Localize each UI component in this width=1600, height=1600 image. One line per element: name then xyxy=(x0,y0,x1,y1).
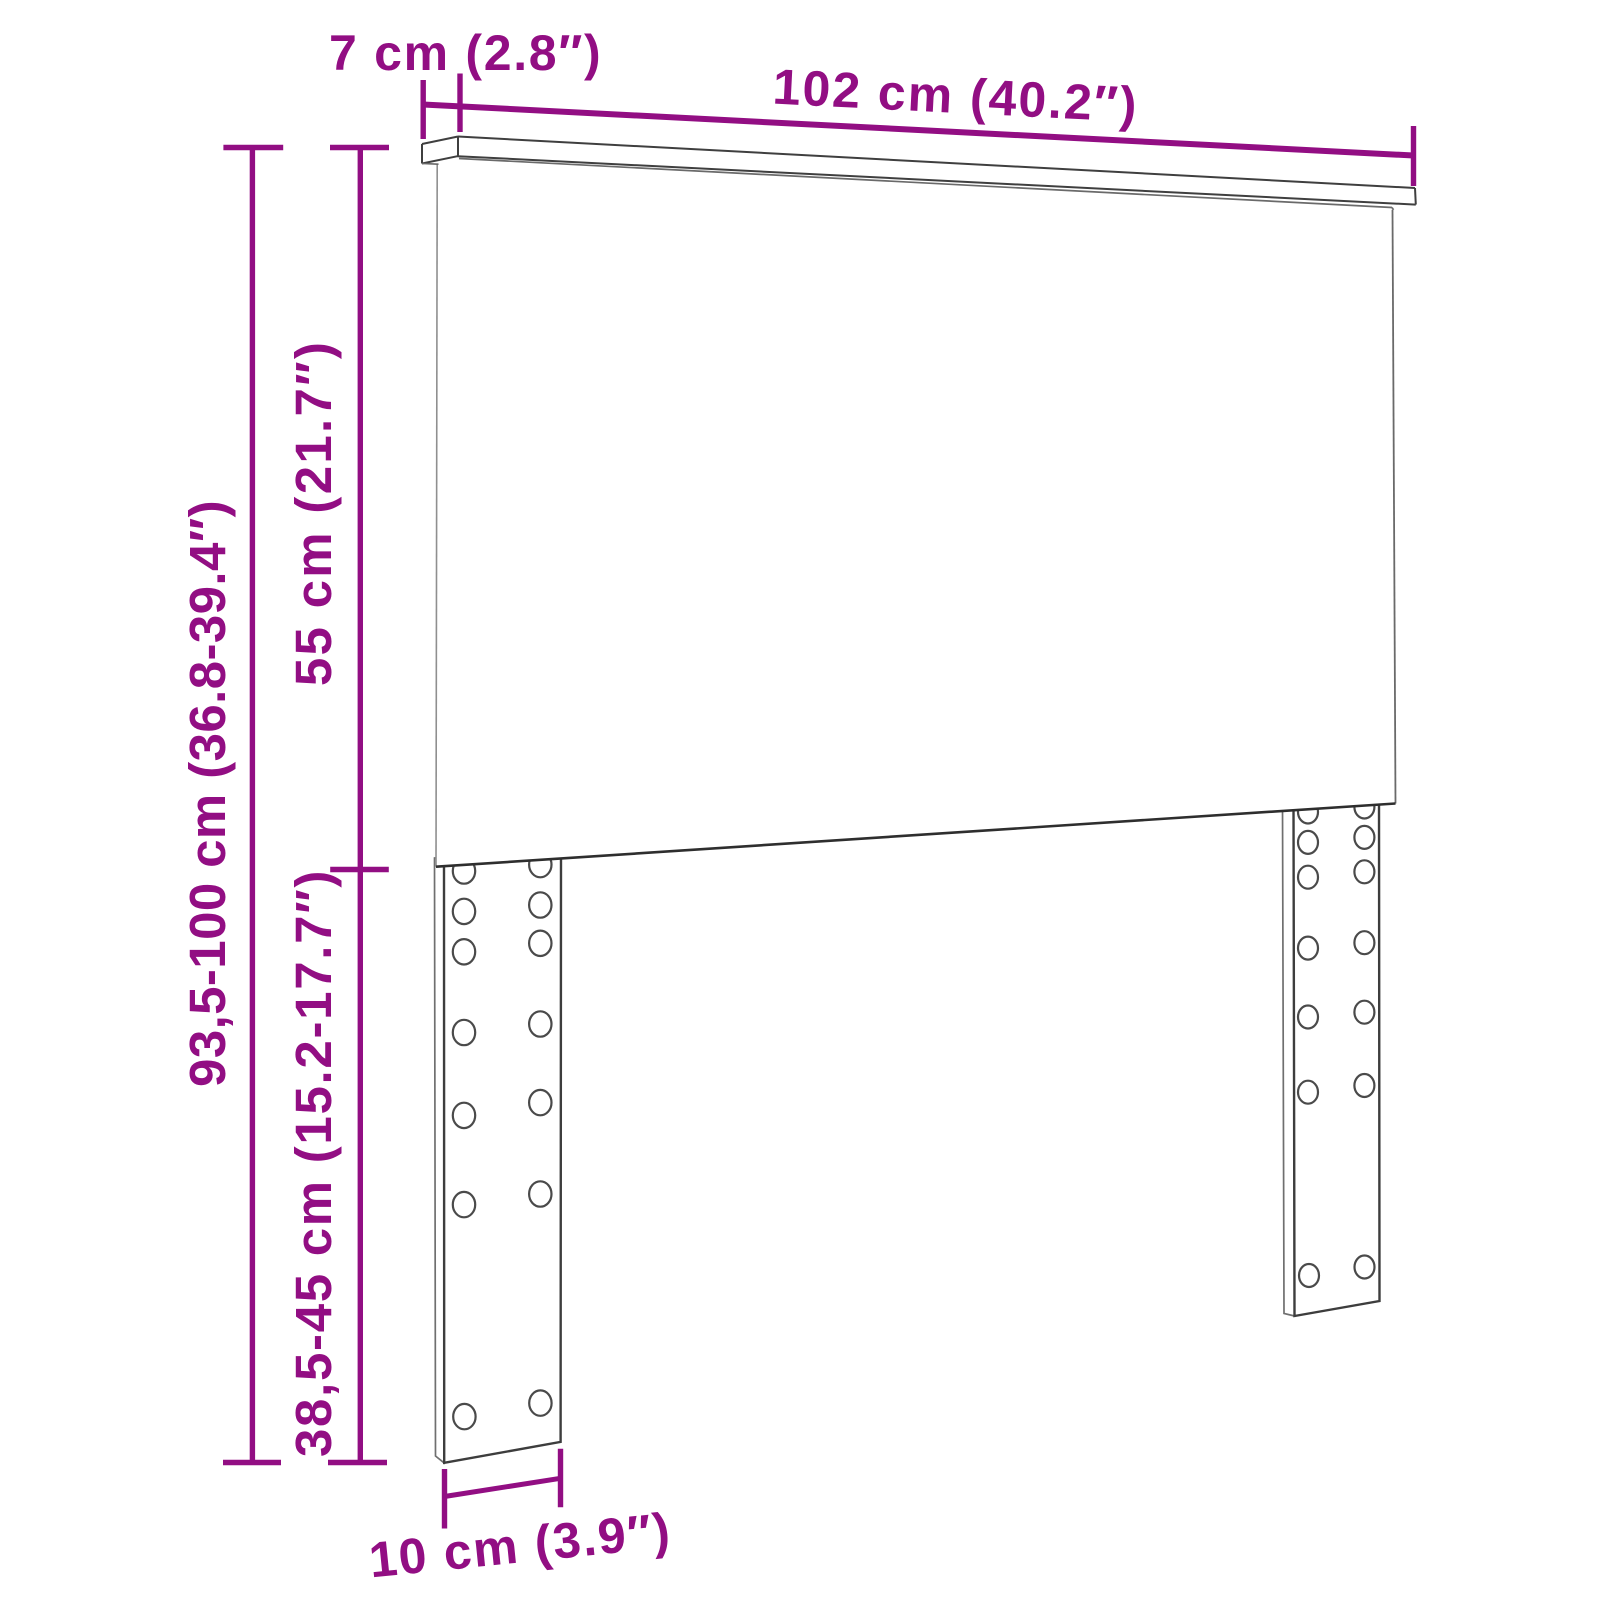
svg-text:55 cm (21.7″): 55 cm (21.7″) xyxy=(285,340,342,686)
svg-text:7 cm (2.8″): 7 cm (2.8″) xyxy=(329,25,602,81)
svg-text:93,5-100 cm (36.8-39.4″): 93,5-100 cm (36.8-39.4″) xyxy=(179,500,236,1087)
svg-text:38,5-45 cm (15.2-17.7″): 38,5-45 cm (15.2-17.7″) xyxy=(285,869,342,1457)
